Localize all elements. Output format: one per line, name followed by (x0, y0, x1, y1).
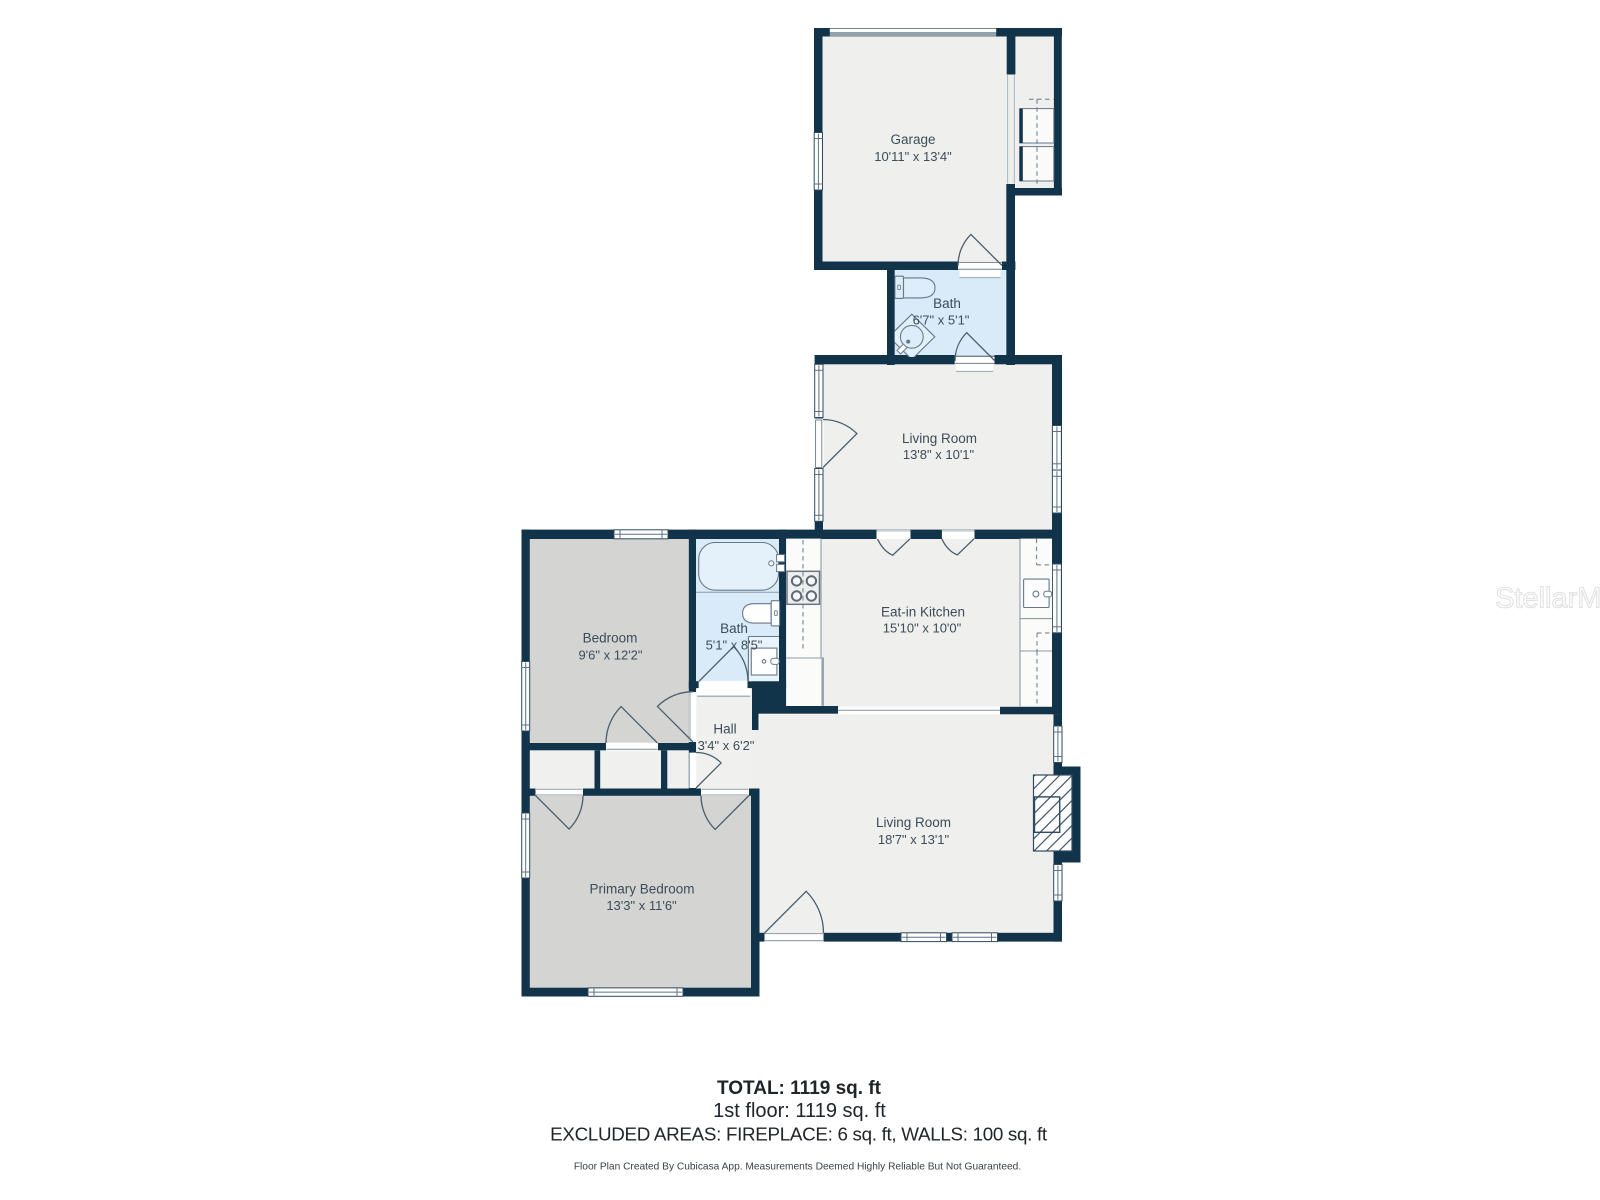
svg-text:9'6" x 12'2": 9'6" x 12'2" (578, 647, 642, 662)
svg-text:Hall: Hall (713, 721, 736, 736)
svg-text:15'10" x 10'0": 15'10" x 10'0" (883, 620, 962, 635)
svg-text:3'4" x 6'2": 3'4" x 6'2" (698, 738, 755, 753)
svg-text:Living Room: Living Room (876, 815, 951, 830)
svg-text:EXCLUDED AREAS: FIREPLACE: 6 s: EXCLUDED AREAS: FIREPLACE: 6 sq. ft, WAL… (550, 1124, 1048, 1145)
svg-text:Garage: Garage (890, 132, 935, 147)
svg-text:StellarMLS: StellarMLS (1495, 583, 1600, 615)
svg-text:TOTAL: 1119 sq. ft: TOTAL: 1119 sq. ft (717, 1078, 882, 1099)
svg-text:Floor Plan Created By Cubicasa: Floor Plan Created By Cubicasa App. Meas… (574, 1162, 1021, 1173)
svg-text:5'1" x 8'5": 5'1" x 8'5" (706, 637, 763, 652)
svg-text:Bedroom: Bedroom (583, 630, 638, 645)
svg-text:1st floor: 1119 sq. ft: 1st floor: 1119 sq. ft (713, 1100, 886, 1122)
svg-text:Primary Bedroom: Primary Bedroom (589, 881, 694, 896)
svg-text:13'3" x 11'6": 13'3" x 11'6" (606, 898, 677, 913)
svg-text:6'7" x 5'1": 6'7" x 5'1" (913, 312, 970, 327)
svg-text:18'7" x 13'1": 18'7" x 13'1" (878, 832, 950, 847)
svg-text:Bath: Bath (720, 621, 748, 636)
svg-text:Bath: Bath (933, 296, 961, 311)
svg-text:Living Room: Living Room (902, 431, 977, 446)
svg-text:13'8" x 10'1": 13'8" x 10'1" (903, 447, 975, 462)
svg-text:Eat-in Kitchen: Eat-in Kitchen (881, 604, 965, 619)
svg-text:10'11" x 13'4": 10'11" x 13'4" (874, 149, 952, 164)
